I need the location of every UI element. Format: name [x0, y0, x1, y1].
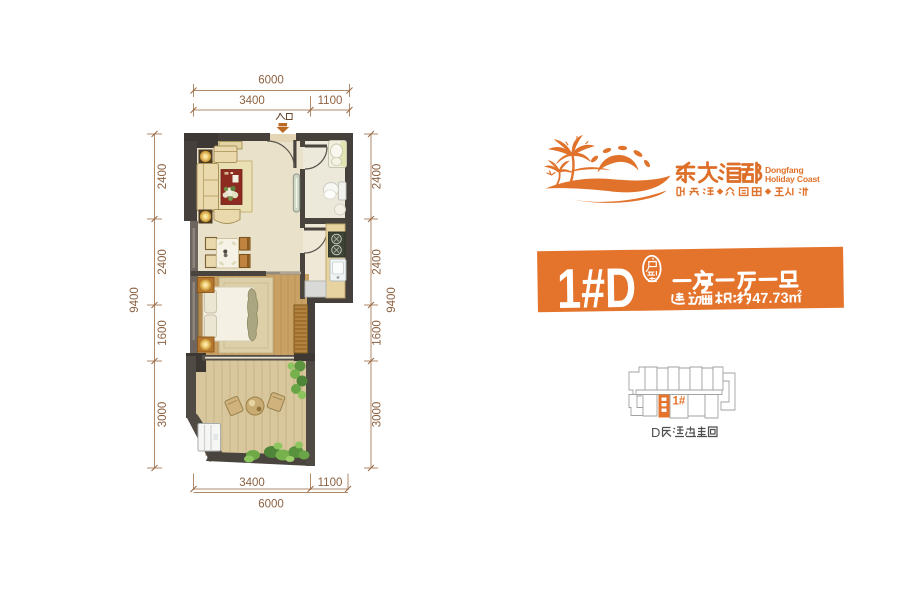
- svg-text:2400: 2400: [372, 164, 384, 190]
- svg-text:1100: 1100: [318, 95, 343, 107]
- svg-text:3000: 3000: [372, 402, 384, 428]
- svg-text:1#: 1#: [673, 396, 686, 408]
- svg-text:3400: 3400: [239, 477, 265, 489]
- svg-text:1600: 1600: [157, 320, 169, 346]
- svg-text:9400: 9400: [129, 287, 141, 313]
- svg-text:D: D: [651, 425, 660, 440]
- svg-text:2400: 2400: [157, 164, 169, 190]
- svg-text:Holiday Coast: Holiday Coast: [765, 174, 820, 184]
- svg-text:2400: 2400: [372, 249, 384, 275]
- svg-text:2: 2: [797, 288, 802, 298]
- svg-text:3400: 3400: [239, 95, 265, 107]
- svg-text:1600: 1600: [372, 320, 384, 346]
- svg-text:3000: 3000: [157, 402, 169, 428]
- svg-text:9400: 9400: [386, 287, 398, 313]
- svg-text:6000: 6000: [258, 499, 284, 511]
- svg-text:6000: 6000: [258, 75, 284, 87]
- svg-text:1100: 1100: [318, 477, 343, 489]
- svg-text:2400: 2400: [157, 249, 169, 275]
- svg-text:1#D: 1#D: [557, 256, 637, 320]
- svg-text:47.73m: 47.73m: [752, 290, 801, 307]
